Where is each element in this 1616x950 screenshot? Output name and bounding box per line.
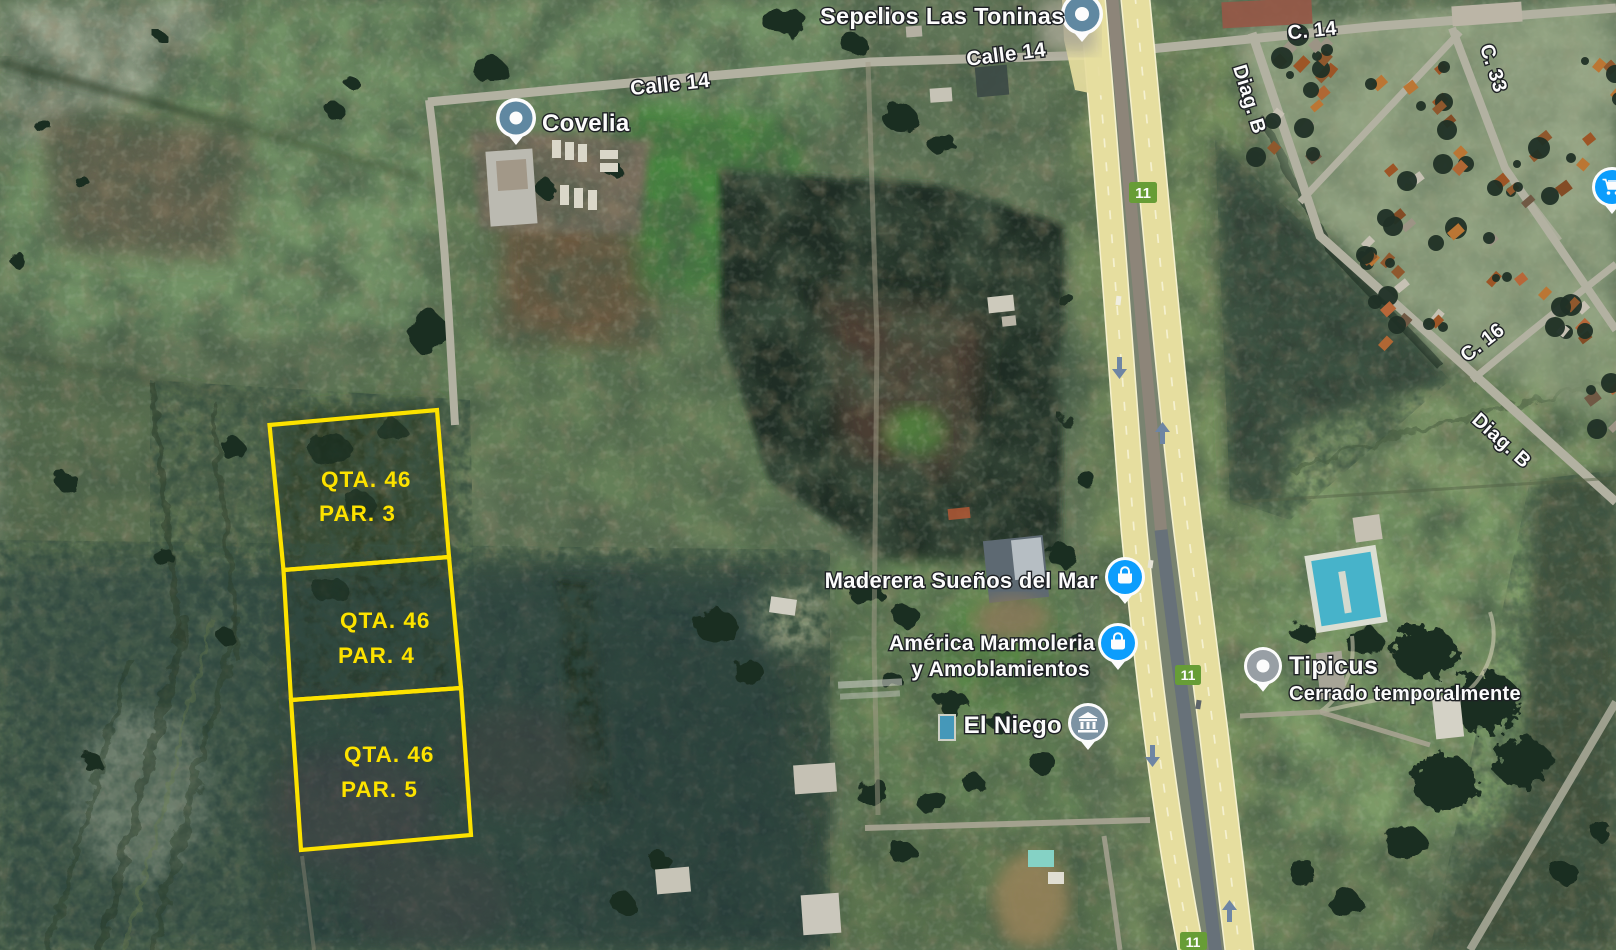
svg-text:El Niego: El Niego <box>964 712 1062 739</box>
svg-text:PAR. 5: PAR. 5 <box>341 777 418 802</box>
svg-text:PAR. 3: PAR. 3 <box>319 501 396 526</box>
svg-text:11: 11 <box>1181 667 1196 683</box>
svg-text:y Amoblamientos: y Amoblamientos <box>911 658 1090 681</box>
svg-text:QTA. 46: QTA. 46 <box>340 608 430 633</box>
svg-text:Sepelios Las Toninas: Sepelios Las Toninas <box>820 3 1065 29</box>
svg-text:PAR. 4: PAR. 4 <box>338 643 415 668</box>
svg-text:11: 11 <box>1135 185 1151 202</box>
svg-text:Tipicus: Tipicus <box>1289 652 1378 680</box>
svg-text:Covelia: Covelia <box>542 110 630 137</box>
svg-text:QTA. 46: QTA. 46 <box>344 742 434 767</box>
svg-text:América Marmoleria: América Marmoleria <box>889 632 1095 655</box>
svg-text:QTA. 46: QTA. 46 <box>321 467 411 492</box>
svg-text:11: 11 <box>1186 934 1201 950</box>
svg-text:Maderera Sueños del Mar: Maderera Sueños del Mar <box>825 568 1099 593</box>
svg-text:Cerrado temporalmente: Cerrado temporalmente <box>1289 683 1521 705</box>
